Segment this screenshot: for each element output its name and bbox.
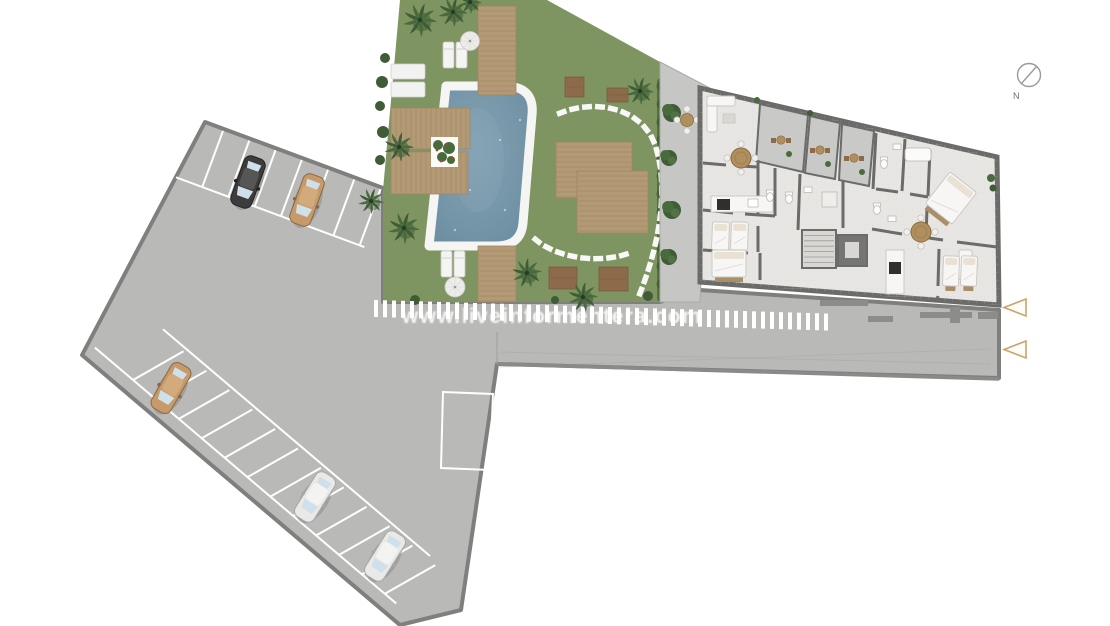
- chair: [684, 106, 690, 112]
- garden-bush: [376, 76, 388, 88]
- toilet-bowl: [786, 195, 793, 204]
- palm-trunk-top: [418, 18, 422, 22]
- entrance-arrows: [1004, 299, 1026, 358]
- low-planter-wall: [868, 316, 893, 322]
- palm-trunk-top: [402, 226, 406, 230]
- dining-table: [911, 222, 931, 242]
- sink: [893, 144, 901, 150]
- sink: [748, 199, 758, 207]
- palm-trunk-top: [581, 295, 585, 299]
- kitchen: [711, 196, 773, 212]
- entrance-arrow-icon: [1004, 341, 1026, 358]
- hatch-bar: [797, 313, 801, 330]
- tree-highlight: [668, 156, 676, 164]
- site-plan-svg: www.liveinformentera.com N: [0, 0, 1110, 626]
- compass-needle-icon: [1021, 66, 1037, 84]
- deck-surface: [478, 6, 516, 95]
- dining-chair: [752, 155, 758, 161]
- sun-lounger: [391, 82, 425, 97]
- wood-deck: [478, 246, 516, 302]
- planter-plant: [433, 140, 443, 150]
- hatch-bar: [743, 311, 747, 328]
- toilet: [786, 192, 793, 203]
- low-planter-wall: [950, 307, 960, 323]
- toilet-bowl: [874, 206, 881, 215]
- hatch-bar: [752, 311, 756, 328]
- terrace-plant: [786, 151, 792, 157]
- outdoor-mat: [607, 88, 628, 102]
- north-compass: N: [1013, 64, 1041, 102]
- hatch-bar: [734, 311, 738, 328]
- stone: [593, 256, 603, 262]
- terrace-table: [777, 136, 785, 144]
- parasol: [445, 277, 465, 297]
- hatch-bar: [716, 310, 720, 327]
- garden-bush: [643, 291, 653, 301]
- outdoor-mat: [565, 77, 584, 97]
- dining-chair: [904, 229, 910, 235]
- toilet: [767, 190, 774, 201]
- pillow: [733, 224, 746, 231]
- sun-lounger: [454, 251, 465, 277]
- stone: [580, 255, 590, 261]
- chair: [674, 117, 680, 123]
- dining-chair: [918, 215, 924, 221]
- lounger-surface: [441, 251, 452, 277]
- sofa-seat: [707, 96, 735, 106]
- facade-plant: [990, 185, 997, 192]
- garden-bush: [375, 155, 385, 165]
- parasol-pole: [469, 40, 472, 43]
- pool-sparkle: [504, 209, 506, 211]
- stone: [595, 104, 605, 110]
- dining-chair: [738, 169, 744, 175]
- bed: [942, 256, 959, 292]
- dining-chair: [738, 141, 744, 147]
- terrace-plant: [825, 161, 831, 167]
- low-planter-wall: [978, 312, 998, 319]
- terrace-table: [816, 146, 824, 154]
- bed: [712, 250, 746, 282]
- palm-trunk-top: [525, 271, 529, 275]
- toilet-bowl: [767, 193, 774, 202]
- palm-trunk-top: [451, 10, 455, 14]
- low-planter-wall: [820, 300, 868, 306]
- tree-highlight: [668, 255, 676, 263]
- kitchen: [886, 250, 904, 294]
- pillow: [945, 258, 957, 265]
- chair: [684, 128, 690, 134]
- stone: [582, 104, 592, 110]
- toilet-bowl: [881, 160, 888, 169]
- sun-lounger: [441, 251, 452, 277]
- garden-bush: [377, 126, 389, 138]
- terrace-chair: [786, 138, 791, 143]
- outdoor-mat: [599, 267, 628, 291]
- palm-trunk-top: [638, 89, 642, 93]
- pool-sparkle: [519, 119, 521, 121]
- hatch-bar: [374, 300, 378, 317]
- pillow: [963, 258, 975, 265]
- dining-chair: [918, 243, 924, 249]
- pool-sparkle: [469, 189, 471, 191]
- stepping-stone: [595, 104, 605, 110]
- pool-garden: [358, 0, 666, 305]
- terrace-chair: [825, 148, 830, 153]
- apartment-building-floorplan: [698, 86, 1003, 308]
- facade-plant: [807, 110, 813, 116]
- pillow: [714, 252, 744, 259]
- table-top: [681, 114, 694, 127]
- planter-flower: [436, 149, 439, 152]
- toilet: [874, 203, 881, 214]
- terrace-chair: [810, 148, 815, 153]
- terrace-plant: [859, 169, 865, 175]
- toilet: [881, 157, 888, 168]
- sink: [888, 216, 896, 222]
- parasol-pole: [454, 286, 457, 289]
- entrance-arrow-icon: [1004, 299, 1026, 316]
- compass-label: N: [1013, 91, 1020, 101]
- dining-chair: [724, 155, 730, 161]
- planter-flower: [451, 157, 454, 160]
- terrace-chair: [844, 156, 849, 161]
- foot-bench: [963, 286, 973, 291]
- wood-deck: [478, 6, 516, 95]
- garden-bush: [375, 101, 385, 111]
- terrace-chair: [859, 156, 864, 161]
- sun-lounger: [391, 64, 425, 79]
- hatch-bar: [788, 312, 792, 329]
- palm-trunk-top: [369, 199, 373, 203]
- stove: [717, 199, 730, 210]
- dining-table: [731, 148, 751, 168]
- palm-trunk-top: [397, 145, 401, 149]
- dining-chair: [932, 229, 938, 235]
- wood-deck: [577, 171, 648, 233]
- pillow: [714, 224, 727, 231]
- foot-bench: [945, 286, 955, 291]
- stepping-stone: [582, 104, 592, 110]
- planter-flower: [446, 143, 449, 146]
- sun-lounger: [443, 42, 454, 68]
- hatch-bar: [824, 314, 828, 331]
- hatch-bar: [806, 313, 810, 330]
- stepping-stone: [593, 256, 603, 262]
- hatch-bar: [761, 312, 765, 329]
- hatch-bar: [392, 301, 396, 318]
- lounger-surface: [443, 42, 454, 68]
- bed: [960, 256, 977, 292]
- sink: [804, 187, 812, 193]
- hatch-bar: [383, 300, 387, 317]
- watermark-layer: www.liveinformentera.com: [401, 305, 702, 328]
- garden-bush: [551, 296, 559, 304]
- stepping-stone: [580, 255, 590, 261]
- hatch-bar: [725, 311, 729, 328]
- parasol: [461, 32, 480, 51]
- planter-flower: [440, 160, 443, 163]
- lounger-surface: [454, 251, 465, 277]
- shower: [822, 192, 837, 207]
- facade-plant: [987, 174, 995, 182]
- outdoor-mat: [549, 267, 577, 289]
- deck-surface: [478, 246, 516, 302]
- hatch-bar: [707, 310, 711, 327]
- pool-sparkle: [454, 229, 456, 231]
- foot-bench: [715, 277, 743, 282]
- planter-plant: [443, 142, 455, 154]
- pool-sparkle: [499, 139, 501, 141]
- hatch-bar: [779, 312, 783, 329]
- stair-elevator-core: [802, 230, 867, 268]
- site-plan-canvas: www.liveinformentera.com N: [0, 0, 1110, 626]
- deck-surface: [577, 171, 648, 233]
- coffee-table: [723, 114, 735, 123]
- elevator-car: [845, 242, 859, 258]
- garden-bush: [380, 53, 390, 63]
- terrace-chair: [771, 138, 776, 143]
- hatch-bar: [770, 312, 774, 329]
- bathtub: [905, 148, 931, 161]
- low-planter-wall: [920, 312, 972, 318]
- palm-trunk-top: [468, 0, 472, 4]
- terrace-table: [850, 154, 858, 162]
- hatch-bar: [815, 313, 819, 330]
- watermark-text: www.liveinformentera.com: [401, 305, 702, 328]
- stove: [889, 262, 901, 274]
- facade-plant: [754, 97, 760, 103]
- tree-highlight: [671, 208, 680, 217]
